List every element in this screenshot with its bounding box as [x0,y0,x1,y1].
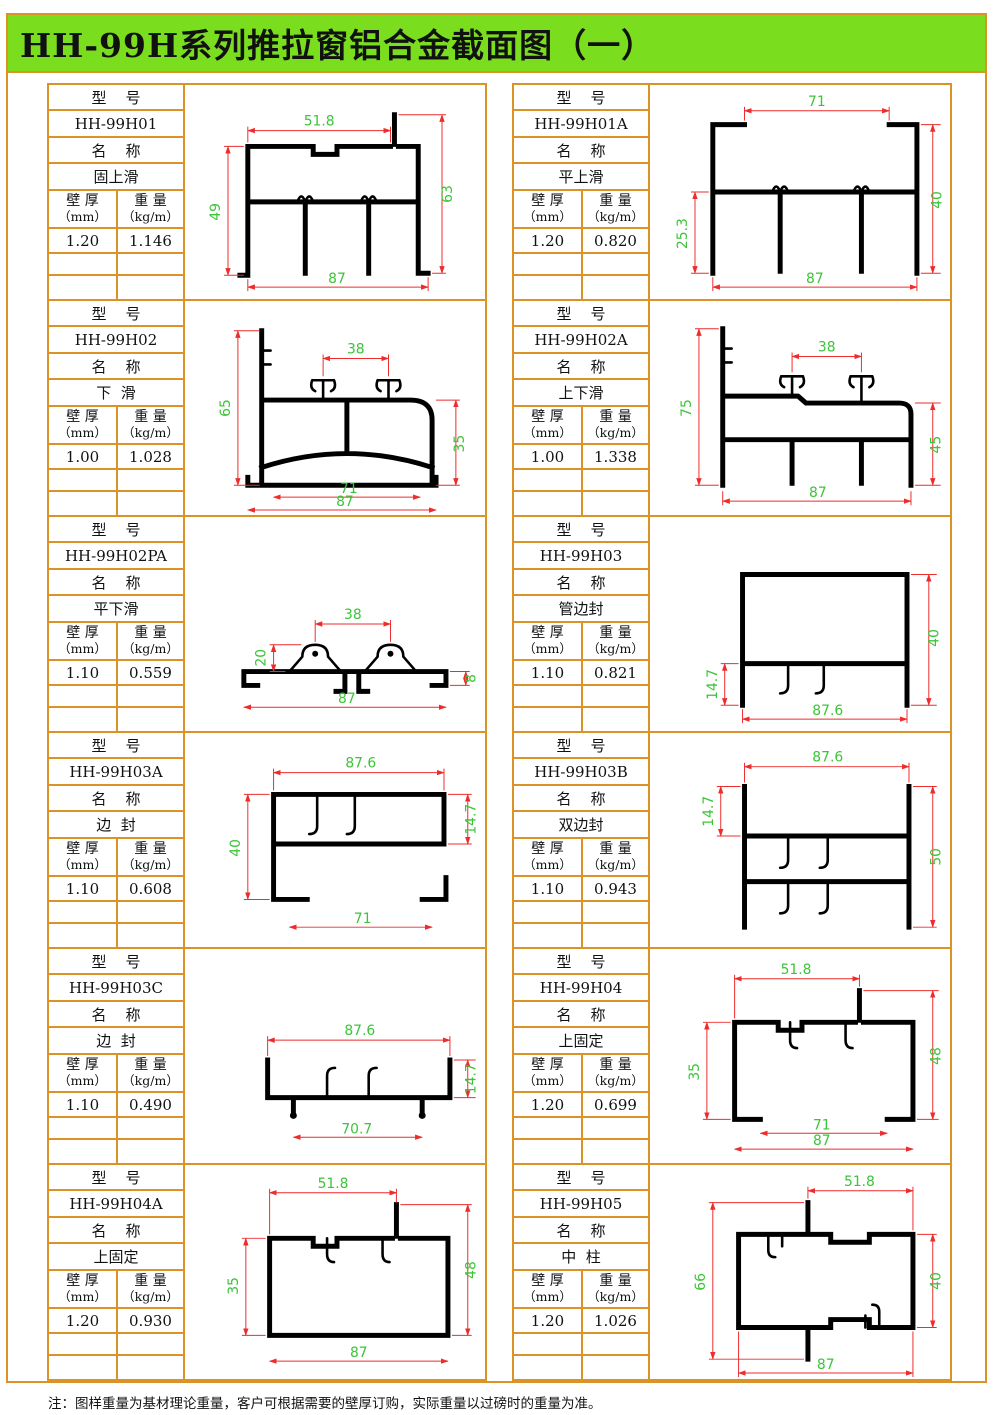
wall-thickness-header-cell: 壁 厚（mm） [49,191,116,229]
profile-drawing: 71 25.3 40 87 [650,85,950,299]
weight-value-cell: 0.490 [116,1093,183,1118]
profile-cell: 型 号 HH-99H03 名 称 管边封 壁 厚（mm） 重 量（kg/m） 1… [512,517,952,733]
weight-header-cell: 重 量（kg/m） [116,623,183,661]
wall-thickness-header-cell: 壁 厚（mm） [49,1271,116,1309]
profile-cell: 型 号 HH-99H02 名 称 下 滑 壁 厚（mm） 重 量（kg/m） 1… [47,301,487,517]
weight-value-cell: 1.338 [581,445,648,470]
profile-cell: 型 号 HH-99H03C 名 称 边 封 壁 厚（mm） 重 量（kg/m） … [47,949,487,1165]
empty-cell [514,276,581,299]
dim-right-label: 48 [464,1261,480,1279]
model-value-cell: HH-99H04 [514,975,648,1002]
empty-cell [514,492,581,515]
cross-section-hh-99h04: 51.8 35 48 71 87 [650,949,950,1163]
dim-left-label: 14.7 [701,796,717,827]
name-header-cell: 名 称 [514,1002,648,1028]
spec-table: 型 号 HH-99H01 名 称 固上滑 壁 厚（mm） 重 量（kg/m） 1… [49,85,185,299]
dim-top-label: 51.8 [304,114,335,130]
model-value-cell: HH-99H04A [49,1191,183,1218]
name-header-cell: 名 称 [49,138,183,164]
cross-section-hh-99h03c: 87.6 14.7 70.7 [185,949,485,1163]
profile-drawing: 38 20 8 87 [185,517,485,731]
empty-cell [116,686,183,708]
dim-bottom-label: 87 [328,271,346,287]
profile-drawing: 87.6 14.7 50 [650,733,950,947]
dim-right-label: 40 [930,191,946,209]
model-header-cell: 型 号 [514,1165,648,1191]
empty-cell [49,276,116,299]
profile-cell: 型 号 HH-99H03A 名 称 边 封 壁 厚（mm） 重 量（kg/m） … [47,733,487,949]
crown-dot [388,651,394,657]
empty-cell [514,1334,581,1356]
dim-right-label: 48 [929,1047,945,1065]
dim-left-label: 35 [226,1277,242,1295]
empty-cell [116,276,183,299]
spec-table: 型 号 HH-99H03B 名 称 双边封 壁 厚（mm） 重 量（kg/m） … [514,733,650,947]
empty-cell [49,1334,116,1356]
empty-cell [49,686,116,708]
name-header-cell: 名 称 [49,570,183,596]
cross-section-hh-99h01: 51.8 49 63 87 [185,85,485,299]
name-value-cell: 管边封 [514,596,648,623]
dim-left-label: 14.7 [705,669,721,700]
dim-right-label: 35 [452,435,468,453]
model-value-cell: HH-99H02PA [49,543,183,570]
dim-left-label: 25.3 [675,218,691,249]
j-hooks [780,664,824,694]
cross-section-hh-99h02: 38 65 35 71 87 [185,301,485,515]
empty-cell [514,254,581,276]
empty-cell [514,470,581,492]
profile-cell: 型 号 HH-99H01A 名 称 平上滑 壁 厚（mm） 重 量（kg/m） … [512,85,952,301]
dim-bottom-label: 87 [806,271,824,287]
dim-top-label: 71 [808,94,826,110]
cross-section-hh-99h02pa: 38 20 8 87 [185,517,485,731]
name-value-cell: 中 柱 [514,1244,648,1271]
model-header-cell: 型 号 [514,949,648,975]
dim-right-label: 40 [929,1272,945,1290]
weight-header-cell: 重 量（kg/m） [581,407,648,445]
model-header-cell: 型 号 [49,301,183,327]
profile-shape [240,115,428,276]
profile-shape [248,331,436,486]
empty-cell [49,902,116,924]
dim-right-label: 45 [929,436,945,454]
weight-value-cell: 1.026 [581,1309,648,1334]
dim-bottom-label: 87 [350,1345,368,1361]
model-value-cell: HH-99H05 [514,1191,648,1218]
wall-thickness-header-cell: 壁 厚（mm） [49,623,116,661]
wall-thickness-value-cell: 1.00 [514,445,581,470]
profile-drawing: 51.8 35 48 87 [185,1165,485,1379]
empty-cell [514,924,581,947]
weight-value-cell: 1.146 [116,229,183,254]
spec-table: 型 号 HH-99H03 名 称 管边封 壁 厚（mm） 重 量（kg/m） 1… [514,517,650,731]
spec-table: 型 号 HH-99H02PA 名 称 平下滑 壁 厚（mm） 重 量（kg/m）… [49,517,185,731]
profile-shape [270,1205,448,1336]
empty-cell [581,708,648,731]
cross-section-hh-99h01a: 71 25.3 40 87 [650,85,950,299]
model-header-cell: 型 号 [49,517,183,543]
spec-table: 型 号 HH-99H02 名 称 下 滑 壁 厚（mm） 重 量（kg/m） 1… [49,301,185,515]
model-value-cell: HH-99H03 [514,543,648,570]
weight-value-cell: 0.821 [581,661,648,686]
profile-drawing: 51.8 35 48 71 87 [650,949,950,1163]
empty-cell [49,492,116,515]
peg-foot [290,1112,297,1119]
name-header-cell: 名 称 [49,1002,183,1028]
empty-cell [49,470,116,492]
spec-table: 型 号 HH-99H01A 名 称 平上滑 壁 厚（mm） 重 量（kg/m） … [514,85,650,299]
dim-left-label: 75 [679,399,695,417]
empty-cell [116,708,183,731]
footer-note: 注：图样重量为基材理论重量，客户可根据需要的壁厚订购，实际重量以过磅时的重量为准… [48,1392,602,1412]
empty-cell [581,902,648,924]
dim-left-label: 49 [208,203,224,221]
model-header-cell: 型 号 [49,85,183,111]
profile-shape [244,672,446,692]
profile-cell: 型 号 HH-99H03B 名 称 双边封 壁 厚（mm） 重 量（kg/m） … [512,733,952,949]
weight-header-cell: 重 量（kg/m） [116,1271,183,1309]
dim-bottom-label: 87 [813,1133,831,1149]
empty-cell [116,902,183,924]
dim-top-label: 87.6 [344,1023,375,1039]
clip-hooks [768,1234,879,1327]
weight-header-cell: 重 量（kg/m） [116,839,183,877]
weight-header-cell: 重 量（kg/m） [581,839,648,877]
weight-header-cell: 重 量（kg/m） [581,623,648,661]
wall-thickness-value-cell: 1.10 [49,661,116,686]
dim-bottom-label: 87 [809,485,827,501]
name-header-cell: 名 称 [514,570,648,596]
profile-shape [723,329,911,486]
model-header-cell: 型 号 [514,733,648,759]
empty-cell [49,924,116,947]
wall-thickness-value-cell: 1.10 [49,1093,116,1118]
dim-bottom-label: 87 [338,691,356,707]
j-hooks [780,836,828,913]
name-value-cell: 上固定 [514,1028,648,1055]
name-header-cell: 名 称 [514,354,648,380]
dim-top-label: 38 [818,340,836,356]
weight-value-cell: 1.028 [116,445,183,470]
model-value-cell: HH-99H03B [514,759,648,786]
model-value-cell: HH-99H01A [514,111,648,138]
model-value-cell: HH-99H03A [49,759,183,786]
name-value-cell: 边 封 [49,1028,183,1055]
name-header-cell: 名 称 [514,786,648,812]
model-header-cell: 型 号 [49,1165,183,1191]
wall-thickness-header-cell: 壁 厚（mm） [49,1055,116,1093]
crown-dot [312,651,318,657]
profile-drawing: 51.8 49 63 87 [185,85,485,299]
dim-bottom-label: 87 [336,494,354,510]
cross-section-hh-99h05: 51.8 66 40 87 [650,1165,950,1379]
profile-drawing: 87.6 40 14.7 71 [185,733,485,947]
name-header-cell: 名 称 [49,1218,183,1244]
wall-thickness-value-cell: 1.20 [514,229,581,254]
model-header-cell: 型 号 [514,301,648,327]
dim-left-label: 40 [228,839,244,857]
empty-cell [49,1118,116,1140]
cross-section-hh-99h04a: 51.8 35 48 87 [185,1165,485,1379]
wall-thickness-header-cell: 壁 厚（mm） [514,623,581,661]
weight-value-cell: 0.559 [116,661,183,686]
track-anchors [780,376,873,403]
wall-thickness-header-cell: 壁 厚（mm） [514,1055,581,1093]
dim-top-label: 87.6 [345,756,376,772]
empty-cell [49,708,116,731]
profile-drawing: 38 65 35 71 87 [185,301,485,515]
j-hooks [309,794,355,834]
wall-thickness-value-cell: 1.20 [49,229,116,254]
profile-cell: 型 号 HH-99H04A 名 称 上固定 壁 厚（mm） 重 量（kg/m） … [47,1165,487,1381]
weight-header-cell: 重 量（kg/m） [581,191,648,229]
dim-top-label: 38 [344,607,362,623]
empty-cell [581,1334,648,1356]
empty-cell [116,492,183,515]
up-hooks [327,1068,377,1098]
name-value-cell: 上下滑 [514,380,648,407]
wall-thickness-header-cell: 壁 厚（mm） [514,191,581,229]
name-value-cell: 平上滑 [514,164,648,191]
model-value-cell: HH-99H02A [514,327,648,354]
dim-left-label: 35 [687,1063,703,1081]
profile-drawing: 14.7 40 87.6 [650,517,950,731]
profile-shape [713,125,917,274]
weight-header-cell: 重 量（kg/m） [116,407,183,445]
cross-section-hh-99h03b: 87.6 14.7 50 [650,733,950,947]
profile-shape [739,1203,913,1360]
spec-table: 型 号 HH-99H03C 名 称 边 封 壁 厚（mm） 重 量（kg/m） … [49,949,185,1163]
weight-header-cell: 重 量（kg/m） [581,1055,648,1093]
dim-bottom-label: 87.6 [812,703,843,719]
dim-right-label: 40 [927,629,943,647]
model-value-cell: HH-99H01 [49,111,183,138]
dim-top-label: 51.8 [844,1174,875,1190]
wall-thickness-header-cell: 壁 厚（mm） [49,407,116,445]
empty-cell [49,1140,116,1163]
weight-header-cell: 重 量（kg/m） [581,1271,648,1309]
table-column-right: 型 号 HH-99H01A 名 称 平上滑 壁 厚（mm） 重 量（kg/m） … [512,83,952,1381]
page-frame: HH-99H系列推拉窗铝合金截面图（一） 型 号 HH-99H01 名 称 固上… [6,13,987,1383]
wall-thickness-value-cell: 1.20 [514,1093,581,1118]
weight-header-cell: 重 量（kg/m） [116,191,183,229]
spec-table: 型 号 HH-99H04 名 称 上固定 壁 厚（mm） 重 量（kg/m） 1… [514,949,650,1163]
dim-left-label: 20 [254,649,270,667]
spec-table: 型 号 HH-99H03A 名 称 边 封 壁 厚（mm） 重 量（kg/m） … [49,733,185,947]
spec-table: 型 号 HH-99H02A 名 称 上下滑 壁 厚（mm） 重 量（kg/m） … [514,301,650,515]
empty-cell [116,1140,183,1163]
peg-foot [419,1112,426,1119]
empty-cell [49,1356,116,1379]
weight-value-cell: 0.820 [581,229,648,254]
empty-cell [116,254,183,276]
model-header-cell: 型 号 [49,733,183,759]
wall-thickness-value-cell: 1.10 [514,877,581,902]
name-header-cell: 名 称 [49,354,183,380]
empty-cell [514,1140,581,1163]
weight-value-cell: 0.608 [116,877,183,902]
profile-shape [268,1060,450,1114]
name-header-cell: 名 称 [514,1218,648,1244]
dim-left-label: 65 [218,399,234,417]
wall-thickness-value-cell: 1.10 [49,877,116,902]
cross-section-hh-99h03a: 87.6 40 14.7 71 [185,733,485,947]
dim-top-label: 51.8 [781,962,812,978]
empty-cell [116,470,183,492]
empty-cell [581,492,648,515]
empty-cell [514,686,581,708]
model-header-cell: 型 号 [514,85,648,111]
empty-cell [514,902,581,924]
dim-right-label: 14.7 [464,1063,480,1094]
name-value-cell: 下 滑 [49,380,183,407]
dim-top-label: 87.6 [812,750,843,766]
wall-thickness-value-cell: 1.20 [49,1309,116,1334]
profile-cell: 型 号 HH-99H01 名 称 固上滑 壁 厚（mm） 重 量（kg/m） 1… [47,85,487,301]
dim-top-label: 38 [347,342,365,358]
name-value-cell: 上固定 [49,1244,183,1271]
dim-right-label: 50 [929,848,945,866]
weight-value-cell: 0.930 [116,1309,183,1334]
profile-cell: 型 号 HH-99H05 名 称 中 柱 壁 厚（mm） 重 量（kg/m） 1… [512,1165,952,1381]
empty-cell [116,1118,183,1140]
dim-right-label: 63 [440,185,456,203]
wall-thickness-header-cell: 壁 厚（mm） [514,1271,581,1309]
weight-header-cell: 重 量（kg/m） [116,1055,183,1093]
empty-cell [514,1356,581,1379]
weight-value-cell: 0.699 [581,1093,648,1118]
empty-cell [581,686,648,708]
model-value-cell: HH-99H03C [49,975,183,1002]
profile-drawing: 38 75 45 87 [650,301,950,515]
dim-bottom-label: 87 [817,1357,835,1373]
wall-thickness-header-cell: 壁 厚（mm） [514,839,581,877]
dim-bottom-label: 70.7 [341,1121,372,1137]
empty-cell [581,1356,648,1379]
title-bar: HH-99H系列推拉窗铝合金截面图（一） [8,15,985,73]
weight-value-cell: 0.943 [581,877,648,902]
name-value-cell: 固上滑 [49,164,183,191]
model-header-cell: 型 号 [49,949,183,975]
dim-bottom-label: 71 [354,911,372,927]
clip-hooks [790,1022,852,1048]
profile-drawing: 87.6 14.7 70.7 [185,949,485,1163]
track-anchors [311,380,400,400]
name-value-cell: 双边封 [514,812,648,839]
cross-section-hh-99h02a: 38 75 45 87 [650,301,950,515]
empty-cell [581,254,648,276]
empty-cell [581,276,648,299]
profile-cell: 型 号 HH-99H02PA 名 称 平下滑 壁 厚（mm） 重 量（kg/m）… [47,517,487,733]
empty-cell [514,1118,581,1140]
profile-shape [735,991,913,1120]
profile-table: 型 号 HH-99H01 名 称 固上滑 壁 厚（mm） 重 量（kg/m） 1… [47,83,952,1381]
profile-drawing: 51.8 66 40 87 [650,1165,950,1379]
name-header-cell: 名 称 [514,138,648,164]
profile-cell: 型 号 HH-99H04 名 称 上固定 壁 厚（mm） 重 量（kg/m） 1… [512,949,952,1165]
spec-table: 型 号 HH-99H04A 名 称 上固定 壁 厚（mm） 重 量（kg/m） … [49,1165,185,1379]
empty-cell [581,924,648,947]
wall-thickness-header-cell: 壁 厚（mm） [49,839,116,877]
empty-cell [581,470,648,492]
dim-bottom-inner-label: 71 [813,1117,831,1133]
spec-table: 型 号 HH-99H05 名 称 中 柱 壁 厚（mm） 重 量（kg/m） 1… [514,1165,650,1379]
empty-cell [116,1356,183,1379]
page-title: HH-99H系列推拉窗铝合金截面图（一） [20,19,655,67]
dim-top-label: 51.8 [318,1176,349,1192]
wall-thickness-value-cell: 1.20 [514,1309,581,1334]
profile-shape [274,794,446,899]
model-value-cell: HH-99H02 [49,327,183,354]
empty-cell [581,1118,648,1140]
profile-cell: 型 号 HH-99H02A 名 称 上下滑 壁 厚（mm） 重 量（kg/m） … [512,301,952,517]
crown-bumps [289,645,416,672]
empty-cell [49,254,116,276]
model-header-cell: 型 号 [514,517,648,543]
wall-thickness-header-cell: 壁 厚（mm） [514,407,581,445]
wall-thickness-value-cell: 1.10 [514,661,581,686]
name-header-cell: 名 称 [49,786,183,812]
dim-left-label: 66 [693,1273,709,1291]
empty-cell [581,1140,648,1163]
cross-section-hh-99h03: 14.7 40 87.6 [650,517,950,731]
name-value-cell: 边 封 [49,812,183,839]
name-value-cell: 平下滑 [49,596,183,623]
table-column-left: 型 号 HH-99H01 名 称 固上滑 壁 厚（mm） 重 量（kg/m） 1… [47,83,487,1381]
empty-cell [116,1334,183,1356]
empty-cell [514,708,581,731]
dim-right-label: 14.7 [464,804,480,835]
dim-right-label: 8 [464,674,480,683]
empty-cell [116,924,183,947]
wall-thickness-value-cell: 1.00 [49,445,116,470]
